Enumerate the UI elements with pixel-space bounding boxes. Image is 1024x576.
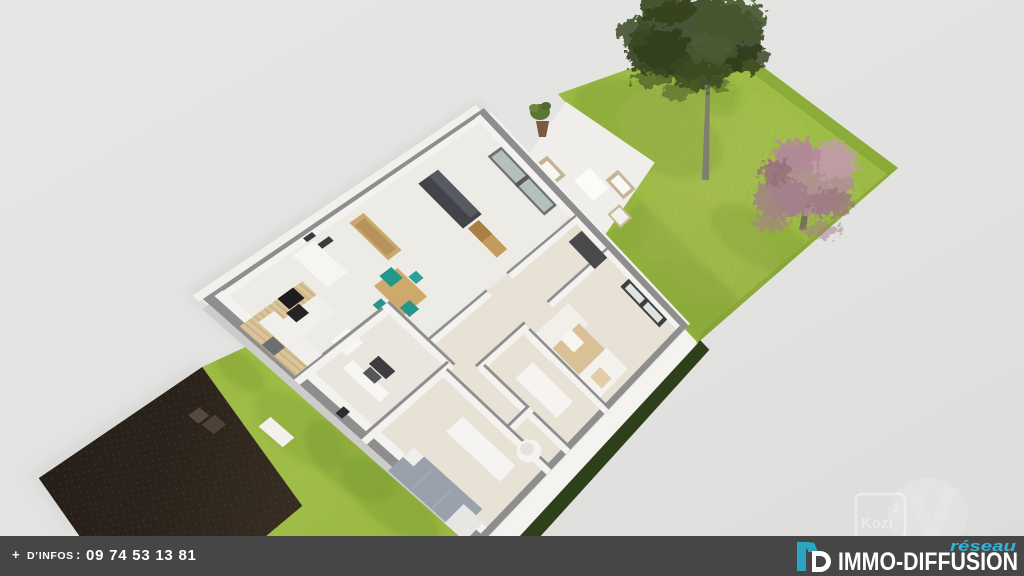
svg-text::: : [76,547,80,562]
svg-text:Kozi: Kozi [861,515,893,532]
svg-text:+: + [12,547,20,562]
svg-text:D’INFOS: D’INFOS [27,550,74,562]
svg-text:09 74 53 13 81: 09 74 53 13 81 [86,547,197,564]
svg-text:réseau: réseau [950,538,1016,555]
svg-text:2: 2 [893,503,899,515]
